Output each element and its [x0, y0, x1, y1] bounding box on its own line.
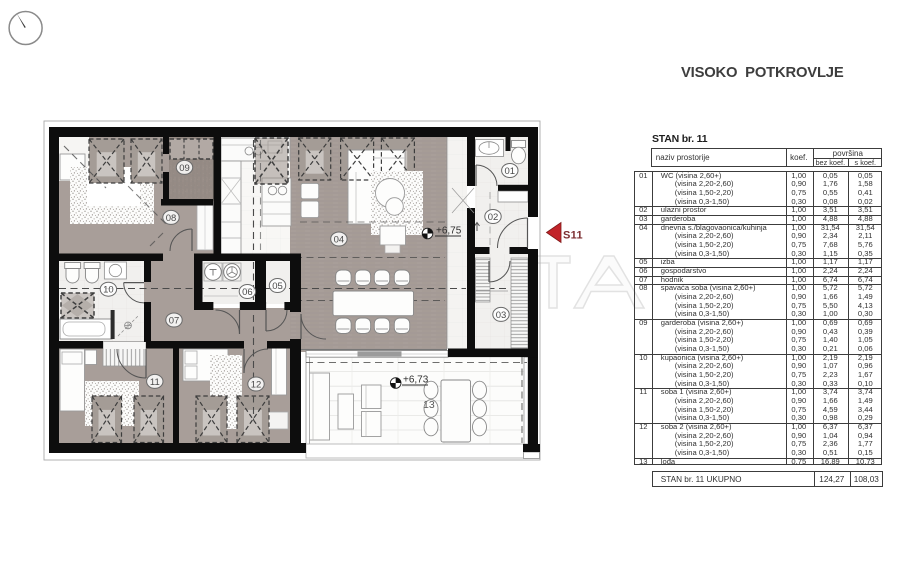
svg-text:03: 03 [496, 310, 507, 321]
svg-text:07: 07 [169, 315, 180, 326]
svg-text:02: 02 [488, 212, 499, 223]
svg-text:11: 11 [150, 377, 160, 388]
svg-text:13: 13 [423, 399, 435, 411]
svg-text:06: 06 [242, 287, 253, 298]
svg-text:01: 01 [505, 166, 516, 177]
svg-text:05: 05 [272, 281, 283, 292]
svg-text:09: 09 [179, 163, 190, 174]
svg-text:+6,75: +6,75 [436, 226, 462, 237]
svg-text:10: 10 [103, 285, 114, 296]
svg-text:S11: S11 [563, 230, 583, 242]
svg-text:+6,73: +6,73 [403, 375, 429, 386]
svg-text:12: 12 [251, 379, 262, 390]
svg-text:04: 04 [334, 234, 345, 245]
svg-text:08: 08 [166, 213, 177, 224]
